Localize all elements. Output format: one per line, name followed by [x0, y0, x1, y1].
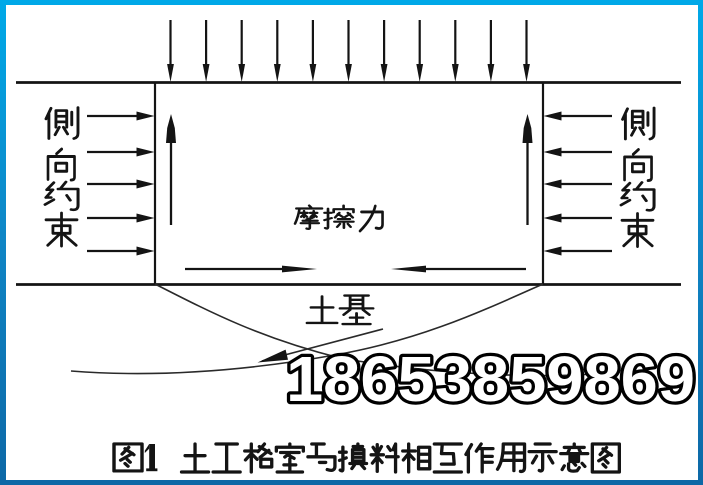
- svg-text:18653859869: 18653859869: [286, 343, 695, 415]
